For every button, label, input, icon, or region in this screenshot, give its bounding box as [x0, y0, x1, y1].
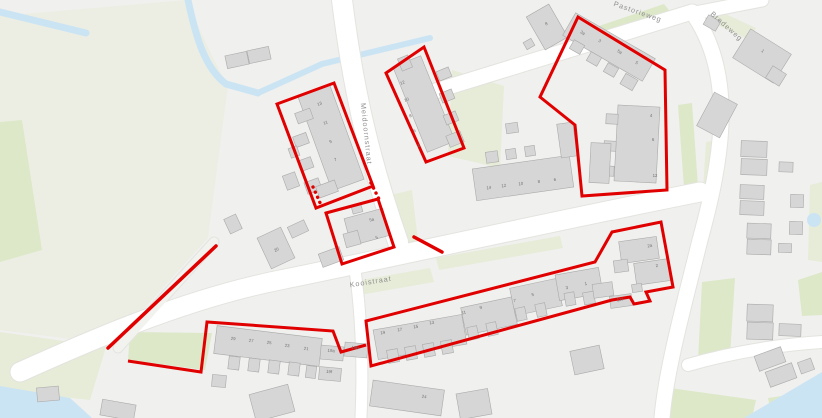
house-number-label: 12: [653, 173, 658, 178]
green-area: [678, 103, 698, 188]
green-area: [668, 388, 756, 418]
building: [592, 282, 614, 299]
building: [247, 46, 271, 63]
building: [740, 201, 764, 216]
building: [268, 360, 281, 374]
building: [741, 141, 768, 158]
building: [228, 356, 241, 370]
building: [343, 230, 361, 247]
building: [505, 122, 518, 134]
building: [212, 374, 227, 387]
building: [248, 358, 261, 372]
map-canvas[interactable]: 13119712108645a53a35a5461214121086208119…: [0, 0, 822, 418]
building: [485, 151, 498, 164]
building: [225, 51, 249, 68]
building: [779, 324, 801, 337]
house-number-label: 4: [416, 143, 421, 149]
building: [790, 194, 803, 207]
building: [564, 292, 576, 307]
building: [305, 365, 316, 378]
building: [249, 384, 295, 418]
map-svg: 13119712108645a53a35a5461214121086208119…: [0, 0, 822, 418]
building: [747, 239, 772, 255]
building: [797, 358, 814, 374]
pond: [807, 213, 821, 227]
building: [779, 162, 793, 172]
building: [224, 214, 243, 234]
building: [570, 345, 604, 375]
building: [287, 220, 308, 238]
green-area: [798, 272, 822, 316]
building: [524, 145, 535, 156]
building: [634, 259, 671, 286]
building: [631, 283, 642, 292]
building: [606, 114, 619, 125]
building: [370, 380, 445, 416]
building: [697, 92, 738, 138]
building: [740, 185, 764, 200]
building: [505, 148, 516, 159]
building: [747, 223, 772, 239]
house-number-label: 19a: [327, 348, 335, 354]
building: [613, 259, 629, 273]
building: [100, 399, 136, 418]
building: [789, 221, 802, 234]
building: [778, 243, 791, 252]
building: [288, 362, 301, 376]
building: [293, 132, 310, 147]
building: [456, 388, 492, 418]
building: [589, 143, 611, 184]
building: [614, 105, 660, 183]
house-number-label: 6: [412, 128, 417, 134]
building: [36, 386, 59, 402]
building: [741, 159, 768, 176]
house-number-label: 19b: [351, 345, 359, 351]
building: [523, 38, 535, 49]
building: [747, 322, 774, 340]
building: [747, 304, 774, 322]
building: [282, 172, 299, 191]
